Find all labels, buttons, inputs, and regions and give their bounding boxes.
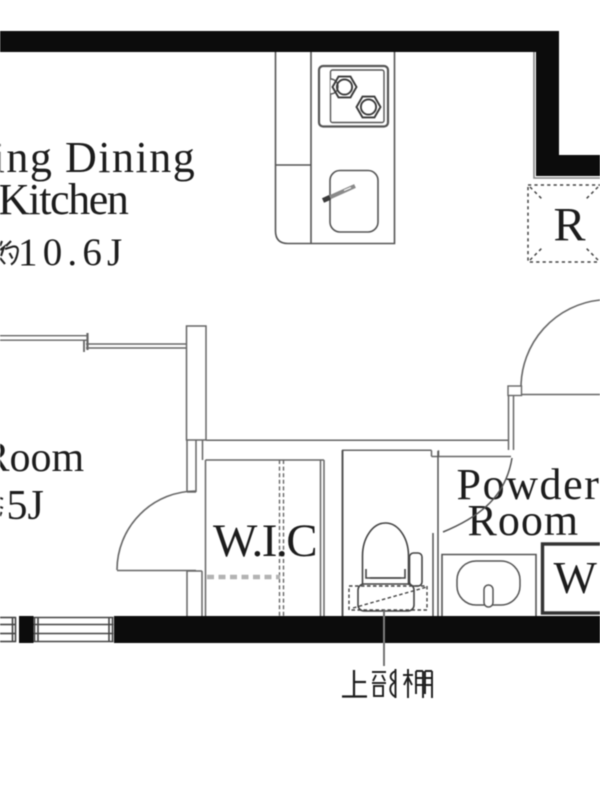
svg-text:W.I.C: W.I.C bbox=[213, 515, 316, 567]
svg-text:Room: Room bbox=[468, 496, 580, 545]
svg-text:Kitchen: Kitchen bbox=[0, 175, 129, 224]
svg-text:W: W bbox=[554, 552, 598, 603]
svg-text:Room: Room bbox=[0, 435, 85, 481]
svg-text:10.6J: 10.6J bbox=[18, 231, 127, 274]
svg-text:R: R bbox=[554, 199, 586, 252]
svg-text:5J: 5J bbox=[7, 483, 44, 529]
